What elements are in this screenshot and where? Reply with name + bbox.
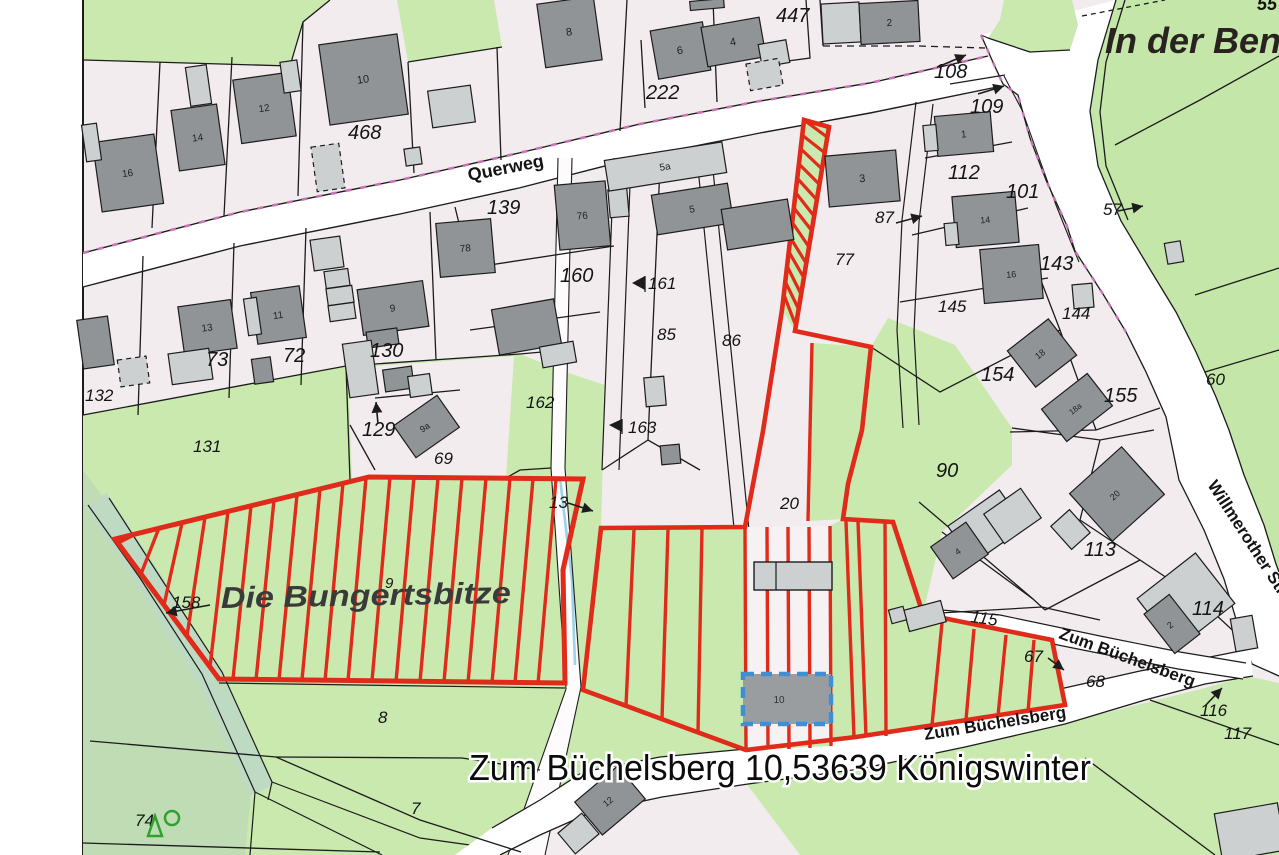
svg-text:447: 447 [776, 5, 810, 27]
svg-text:113: 113 [1084, 539, 1116, 561]
svg-text:12: 12 [258, 103, 271, 116]
svg-text:8: 8 [378, 708, 388, 727]
svg-text:101: 101 [1006, 181, 1039, 203]
svg-text:55: 55 [1257, 0, 1278, 14]
svg-text:68: 68 [1086, 672, 1105, 691]
svg-text:72: 72 [283, 345, 305, 367]
svg-text:69: 69 [434, 449, 453, 468]
svg-text:108: 108 [934, 61, 967, 83]
svg-text:109: 109 [970, 96, 1003, 118]
svg-text:Zum Büchelsberg 10,53639 König: Zum Büchelsberg 10,53639 Königswinter [469, 747, 1091, 788]
svg-text:16: 16 [121, 168, 134, 181]
svg-text:143: 143 [1040, 253, 1073, 275]
svg-text:468: 468 [348, 122, 381, 144]
svg-text:115: 115 [969, 607, 999, 630]
svg-text:130: 130 [370, 340, 403, 362]
svg-text:10: 10 [356, 73, 370, 87]
svg-text:76: 76 [576, 211, 588, 223]
svg-text:10: 10 [773, 695, 785, 706]
svg-text:87: 87 [875, 208, 894, 227]
svg-text:3: 3 [859, 173, 866, 185]
svg-text:114: 114 [1192, 598, 1224, 620]
svg-text:5a: 5a [659, 161, 672, 174]
svg-text:163: 163 [628, 418, 657, 437]
svg-text:2: 2 [886, 18, 893, 29]
svg-text:11: 11 [272, 310, 284, 322]
svg-text:144: 144 [1062, 304, 1090, 323]
svg-text:222: 222 [645, 82, 679, 104]
svg-text:116: 116 [1200, 701, 1228, 720]
svg-text:73: 73 [206, 349, 228, 371]
svg-text:154: 154 [981, 364, 1014, 386]
svg-text:77: 77 [835, 250, 854, 269]
svg-text:139: 139 [487, 197, 520, 219]
svg-text:78: 78 [459, 243, 471, 255]
svg-text:155: 155 [1104, 385, 1138, 407]
svg-text:In der Benn: In der Benn [1105, 20, 1279, 61]
svg-text:129: 129 [362, 419, 395, 441]
svg-text:67: 67 [1024, 647, 1043, 666]
svg-text:132: 132 [85, 386, 114, 405]
svg-text:13: 13 [549, 493, 568, 512]
svg-text:90: 90 [936, 460, 958, 482]
svg-text:160: 160 [560, 265, 593, 287]
svg-text:131: 131 [193, 437, 221, 456]
svg-text:86: 86 [722, 331, 741, 350]
svg-text:20: 20 [779, 494, 799, 513]
svg-text:162: 162 [526, 393, 555, 412]
svg-text:60: 60 [1206, 370, 1225, 389]
svg-text:7: 7 [411, 799, 421, 818]
svg-text:16: 16 [1006, 269, 1017, 280]
svg-text:112: 112 [948, 162, 980, 184]
svg-text:14: 14 [980, 215, 991, 226]
svg-text:57: 57 [1103, 200, 1122, 219]
svg-text:117: 117 [1224, 724, 1252, 743]
svg-text:13: 13 [201, 322, 214, 335]
svg-text:85: 85 [657, 325, 676, 344]
svg-text:161: 161 [648, 274, 676, 293]
svg-text:145: 145 [938, 297, 967, 316]
svg-text:14: 14 [191, 132, 204, 145]
svg-text:Die Bungertsbitze: Die Bungertsbitze [221, 577, 512, 615]
